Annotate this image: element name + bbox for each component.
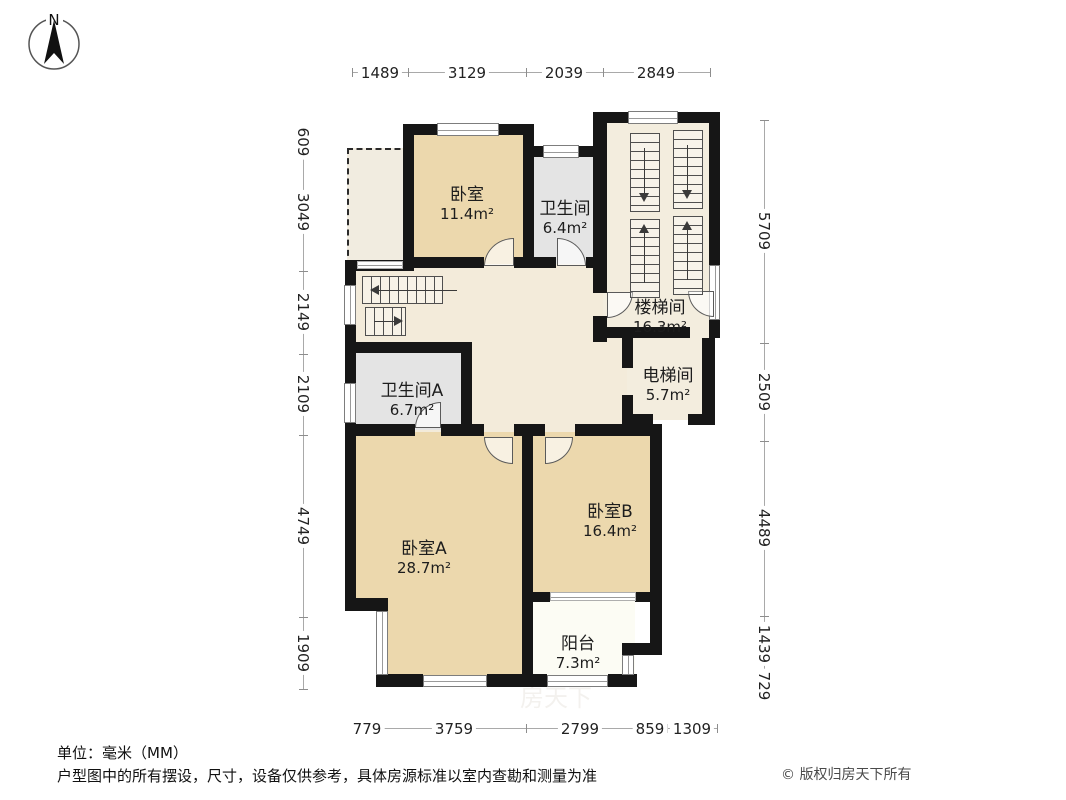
wall <box>608 674 637 687</box>
dim-label: 3129 <box>445 64 489 82</box>
window <box>547 675 608 687</box>
stair-arrow-up-icon <box>682 221 692 230</box>
room-label-bedroom-top: 卧室 11.4m² <box>440 185 494 224</box>
copyright: © 版权归房天下所有 <box>781 764 911 784</box>
dim-tick <box>760 120 769 121</box>
window <box>357 261 403 269</box>
wall <box>522 424 533 687</box>
room-label-balcony: 阳台 7.3m² <box>556 634 600 673</box>
room-name: 卧室A <box>397 539 451 559</box>
wall <box>709 112 720 265</box>
dim-tick <box>710 68 711 77</box>
room-area: 28.7m² <box>397 559 451 578</box>
dim-tick <box>760 441 769 442</box>
dim-label: 5709 <box>755 209 773 253</box>
dim-label: 3049 <box>294 190 312 234</box>
dim-tick <box>352 68 353 77</box>
stair-direction-line <box>379 290 457 291</box>
dim-tick <box>299 617 308 618</box>
wall <box>593 112 607 293</box>
wall <box>461 342 472 436</box>
room-label-bedroom-b: 卧室B 16.4m² <box>583 502 637 541</box>
wall <box>622 338 633 368</box>
stair-arrow-left-icon <box>370 285 379 295</box>
wall <box>523 124 534 268</box>
window <box>622 655 634 675</box>
floorplan-page: { "compass": { "label": "N" }, "rooms": … <box>0 0 1066 800</box>
dim-label: 2039 <box>542 64 586 82</box>
terrace-dashed-area <box>347 148 410 266</box>
wall <box>403 124 414 268</box>
dim-label: 729 <box>755 669 773 704</box>
room-name: 阳台 <box>556 634 600 654</box>
wall <box>635 592 651 602</box>
dim-label: 2509 <box>755 370 773 414</box>
wall <box>345 423 356 611</box>
dim-tick <box>299 689 308 690</box>
dim-label: 1489 <box>358 64 402 82</box>
window <box>344 383 356 423</box>
wall <box>622 395 633 425</box>
wall <box>487 674 547 687</box>
dim-tick <box>299 271 308 272</box>
wall <box>530 592 550 602</box>
room-label-bathroom-top: 卫生间 6.4m² <box>540 199 591 238</box>
dim-label: 1309 <box>670 720 714 738</box>
dim-tick <box>526 68 527 77</box>
stair-arrow-down-icon <box>639 193 649 202</box>
room-label-bedroom-a: 卧室A 28.7m² <box>397 539 451 578</box>
wall <box>650 424 662 643</box>
dim-tick <box>717 724 718 733</box>
room-name: 楼梯间 <box>633 298 687 318</box>
room-name: 卧室 <box>440 185 494 205</box>
wall <box>622 643 662 655</box>
wall <box>575 424 662 436</box>
wall <box>702 338 715 425</box>
dim-tick <box>408 68 409 77</box>
room-area: 16.4m² <box>583 522 637 541</box>
dim-label: 779 <box>350 720 385 738</box>
dim-label: 609 <box>294 125 312 160</box>
room-area: 11.4m² <box>440 205 494 224</box>
room-label-elevator: 电梯间 5.7m² <box>643 366 694 405</box>
dim-tick <box>760 616 769 617</box>
wall <box>345 260 356 285</box>
dim-tick <box>299 435 308 436</box>
unit-note: 单位：毫米（MM） <box>57 742 188 763</box>
dim-tick <box>526 724 527 733</box>
dim-label: 2109 <box>294 372 312 416</box>
disclaimer: 户型图中的所有摆设，尺寸，设备仅供参考，具体房源标准以室内查勘和测量为准 <box>57 765 597 786</box>
dim-tick <box>760 343 769 344</box>
room-area: 6.4m² <box>540 219 591 238</box>
dim-label: 1439 <box>755 622 773 666</box>
stair-direction-line <box>374 321 396 322</box>
wall <box>403 257 484 268</box>
stair-arrow-right-icon <box>394 316 403 326</box>
stair-arrow-down-icon <box>682 190 692 199</box>
wall <box>709 320 720 338</box>
compass: N <box>22 8 92 80</box>
wall <box>514 257 556 268</box>
room-area: 6.7m² <box>381 401 444 420</box>
room-label-bathroom-a: 卫生间A 6.7m² <box>381 381 444 420</box>
window <box>543 145 579 158</box>
dim-label: 2849 <box>634 64 678 82</box>
stair-direction-line <box>687 145 688 191</box>
window <box>423 675 487 687</box>
compass-n-label: N <box>48 11 59 29</box>
dim-label: 859 <box>633 720 668 738</box>
dim-label: 2149 <box>294 290 312 334</box>
wall <box>350 424 415 436</box>
window <box>628 111 678 124</box>
window <box>550 592 636 601</box>
dim-label: 2799 <box>558 720 602 738</box>
room-area: 16.3m² <box>633 318 687 337</box>
wall <box>345 325 356 383</box>
dim-label: 3759 <box>432 720 476 738</box>
dim-label: 4489 <box>755 506 773 550</box>
wall <box>593 316 607 342</box>
room-name: 卧室B <box>583 502 637 522</box>
dim-tick <box>299 354 308 355</box>
stair-arrow-up-icon <box>639 224 649 233</box>
window <box>344 285 356 325</box>
dim-label: 1909 <box>294 631 312 675</box>
room-name: 电梯间 <box>643 366 694 386</box>
exterior-notch-mask <box>345 611 376 691</box>
stair-direction-line <box>687 230 688 280</box>
room-label-stairwell: 楼梯间 16.3m² <box>633 298 687 337</box>
window <box>437 123 499 136</box>
wall <box>376 674 423 687</box>
wall <box>350 342 472 353</box>
room-name: 卫生间A <box>381 381 444 401</box>
stair-direction-line <box>644 233 645 283</box>
room-name: 卫生间 <box>540 199 591 219</box>
window <box>376 611 388 675</box>
dim-label: 4749 <box>294 504 312 548</box>
room-area: 5.7m² <box>643 386 694 405</box>
stair-direction-line <box>644 148 645 194</box>
dim-tick <box>603 68 604 77</box>
room-area: 7.3m² <box>556 654 600 673</box>
